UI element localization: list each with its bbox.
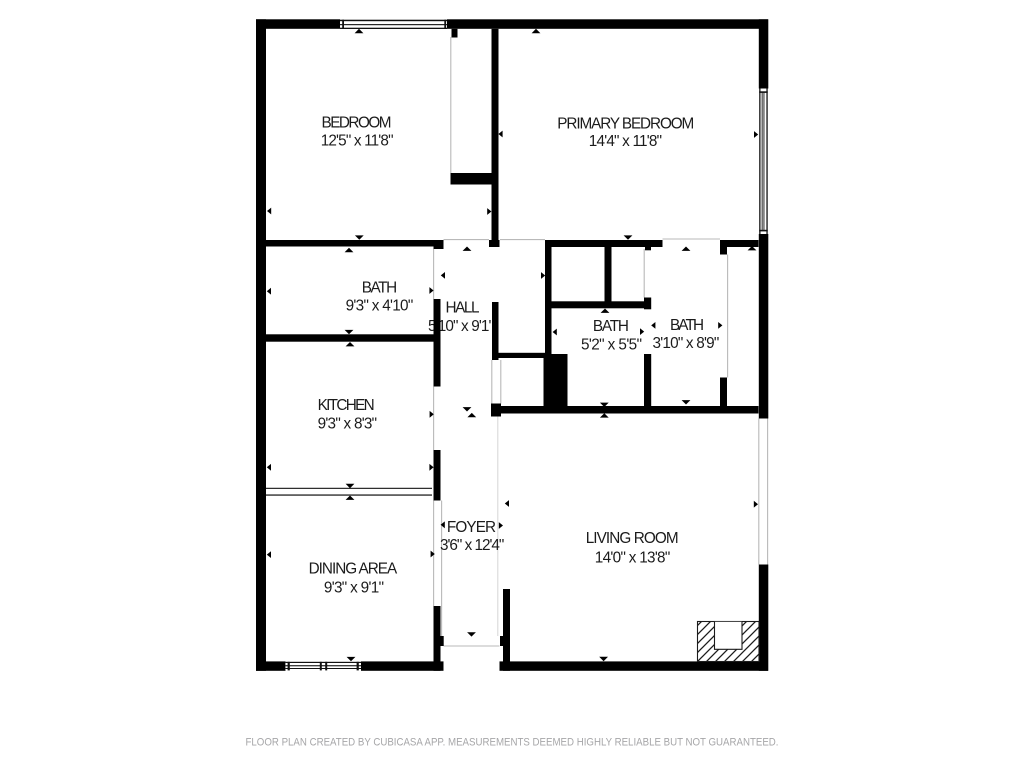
svg-text:HALL: HALL bbox=[446, 299, 480, 316]
svg-text:9'3" x 8'3": 9'3" x 8'3" bbox=[318, 416, 378, 433]
svg-text:14'0" x 13'8": 14'0" x 13'8" bbox=[595, 549, 671, 566]
svg-text:LIVING ROOM: LIVING ROOM bbox=[586, 530, 679, 547]
svg-text:DINING AREA: DINING AREA bbox=[309, 560, 398, 577]
svg-text:5'2" x 5'5": 5'2" x 5'5" bbox=[581, 337, 642, 354]
svg-text:BATH: BATH bbox=[593, 318, 629, 335]
svg-text:FLOOR PLAN CREATED BY CUBICASA: FLOOR PLAN CREATED BY CUBICASA APP. MEAS… bbox=[246, 736, 779, 748]
svg-text:3'10" x 8'9": 3'10" x 8'9" bbox=[653, 335, 720, 352]
svg-text:12'5" x 11'8": 12'5" x 11'8" bbox=[321, 133, 394, 150]
svg-text:BEDROOM: BEDROOM bbox=[322, 115, 392, 132]
svg-text:BATH: BATH bbox=[362, 279, 398, 296]
svg-text:BATH: BATH bbox=[670, 317, 704, 334]
svg-text:FOYER: FOYER bbox=[447, 519, 496, 536]
svg-text:3'6" x 12'4": 3'6" x 12'4" bbox=[440, 537, 504, 554]
svg-text:9'3" x 4'10": 9'3" x 4'10" bbox=[346, 298, 414, 315]
svg-text:KITCHEN: KITCHEN bbox=[318, 397, 375, 414]
svg-text:PRIMARY BEDROOM: PRIMARY BEDROOM bbox=[557, 116, 694, 133]
svg-text:14'4" x 11'8": 14'4" x 11'8" bbox=[589, 133, 662, 150]
svg-text:9'3" x 9'1": 9'3" x 9'1" bbox=[324, 580, 384, 597]
